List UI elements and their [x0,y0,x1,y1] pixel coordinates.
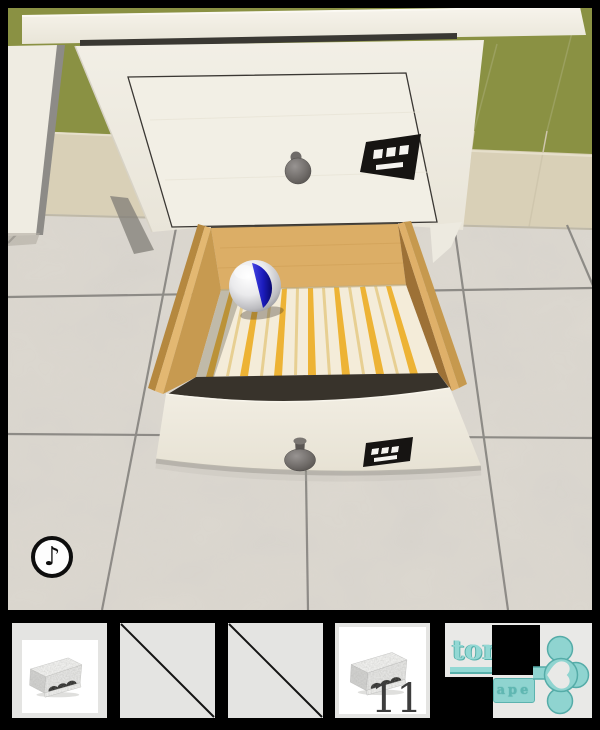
logo-key-icon [533,631,592,718]
inventory-slot-4[interactable]: 11 [335,623,430,718]
closed-drawer-knob[interactable] [285,158,311,184]
scene-svg [0,0,600,612]
slot-item-stone [26,651,88,699]
logo-plate-text: ape [497,683,532,698]
slot-empty-diagonal-icon [120,623,215,718]
inventory-slot-2[interactable] [120,623,215,718]
open-drawer-knob-cap [294,438,307,445]
striped-ball[interactable] [229,260,281,312]
music-note-icon: ♪ [44,542,61,572]
open-drawer-knob[interactable] [285,449,316,471]
inventory-slot-3[interactable] [228,623,323,718]
sound-toggle-button[interactable]: ♪ [31,536,73,578]
logo-underline [450,667,494,674]
brand-logo[interactable]: tom ape [445,623,592,718]
item-count: 11 [371,680,422,718]
left-panel-floor-shadow [8,233,40,246]
inventory-slot-1[interactable] [12,623,107,718]
game-scene [0,0,600,612]
logo-censor-square [445,677,493,718]
logo-plate-ape: ape [493,678,535,703]
slot-empty-diagonal-icon [228,623,323,718]
inventory-bar: 11 tom ape [0,612,600,730]
open-drawer[interactable] [148,221,467,406]
